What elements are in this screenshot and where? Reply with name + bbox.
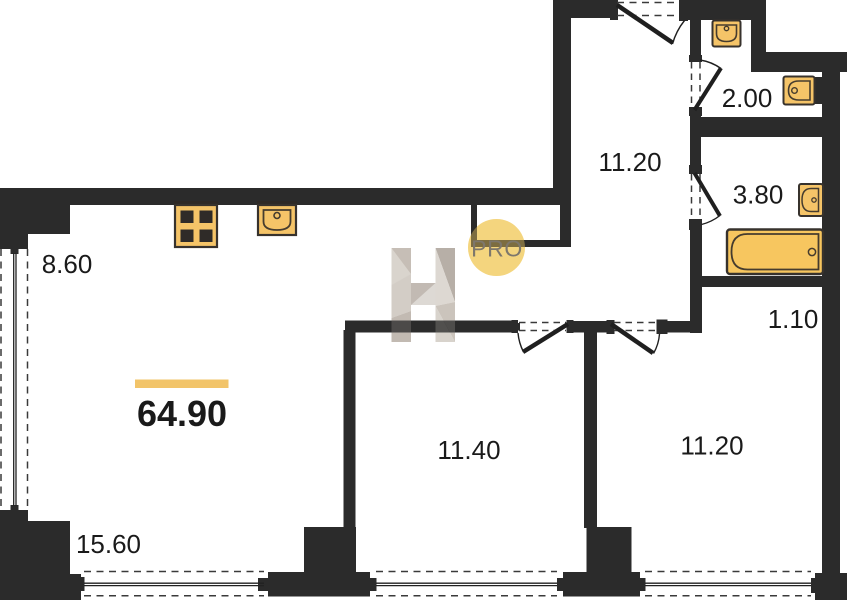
svg-text:15.60: 15.60 [76, 529, 141, 559]
svg-text:2.00: 2.00 [722, 83, 773, 113]
svg-text:11.40: 11.40 [437, 435, 500, 465]
svg-text:64.90: 64.90 [137, 393, 227, 434]
svg-text:3.80: 3.80 [733, 180, 784, 210]
svg-text:1.10: 1.10 [768, 304, 819, 334]
svg-text:11.20: 11.20 [598, 147, 661, 177]
svg-text:11.20: 11.20 [680, 431, 743, 461]
svg-text:8.60: 8.60 [42, 249, 93, 279]
svg-text:PRO: PRO [471, 236, 523, 262]
